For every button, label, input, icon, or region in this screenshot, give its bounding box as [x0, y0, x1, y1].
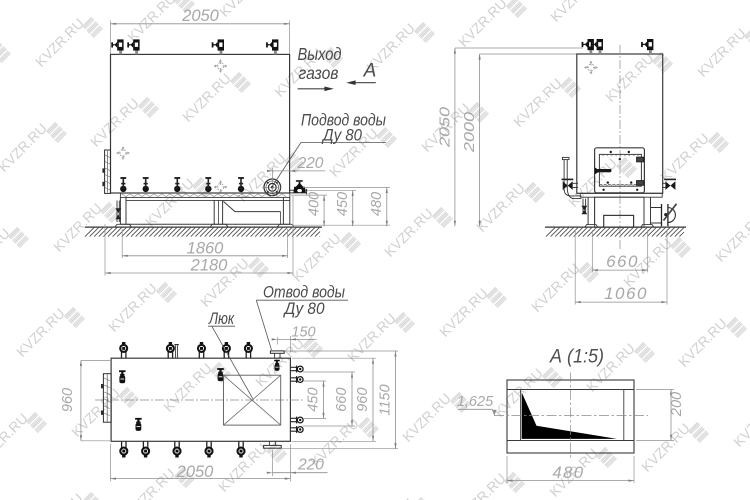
svg-text:2050: 2050	[176, 463, 215, 481]
svg-text:KVZR.RU: KVZR.RU	[362, 495, 417, 500]
svg-text:2050: 2050	[181, 7, 220, 25]
svg-text:KVZR.RU: KVZR.RU	[124, 0, 179, 45]
svg-text:480: 480	[369, 192, 385, 216]
svg-text:KVZR.RU: KVZR.RU	[0, 120, 50, 175]
svg-text:KVZR.RU: KVZR.RU	[216, 0, 271, 20]
svg-text:KVZR.RU: KVZR.RU	[436, 285, 491, 340]
svg-text:200: 200	[669, 392, 685, 417]
svg-text:KVZR.RU: KVZR.RU	[528, 260, 583, 315]
svg-text:450: 450	[335, 192, 351, 216]
svg-text:1,625: 1,625	[457, 394, 494, 410]
svg-text:220: 220	[297, 457, 324, 474]
svg-text:2050: 2050	[437, 106, 454, 148]
svg-text:KVZR.RU: KVZR.RU	[510, 75, 565, 130]
svg-text:960: 960	[355, 388, 371, 412]
svg-text:KVZR.RU: KVZR.RU	[0, 410, 31, 465]
svg-text:150: 150	[291, 324, 315, 340]
svg-text:KVZR.RU: KVZR.RU	[105, 280, 160, 335]
svg-text:2000: 2000	[461, 111, 478, 153]
svg-text:KVZR.RU: KVZR.RU	[602, 50, 657, 105]
svg-text:400: 400	[307, 192, 323, 216]
svg-text:KVZR.RU: KVZR.RU	[473, 180, 528, 235]
svg-text:А (1:5): А (1:5)	[549, 347, 604, 368]
svg-text:KVZR.RU: KVZR.RU	[657, 130, 712, 185]
svg-text:KVZR.RU: KVZR.RU	[32, 15, 87, 70]
svg-text:KVZR.RU: KVZR.RU	[638, 420, 693, 475]
svg-text:Ду 80: Ду 80	[283, 300, 326, 318]
svg-text:KVZR.RU: KVZR.RU	[730, 395, 750, 450]
svg-text:1150: 1150	[378, 384, 394, 415]
svg-text:1060: 1060	[604, 284, 648, 303]
svg-text:660: 660	[334, 388, 350, 412]
svg-text:KVZR.RU: KVZR.RU	[87, 95, 142, 150]
svg-text:KVZR.RU: KVZR.RU	[68, 385, 123, 440]
svg-text:660: 660	[606, 252, 639, 271]
svg-text:KVZR.RU: KVZR.RU	[123, 465, 178, 500]
svg-text:KVZR.RU: KVZR.RU	[675, 315, 730, 370]
svg-text:KVZR.RU: KVZR.RU	[179, 70, 234, 125]
svg-text:Ду 80: Ду 80	[321, 127, 363, 145]
svg-text:KVZR.RU: KVZR.RU	[289, 230, 344, 285]
svg-text:KVZR.RU: KVZR.RU	[344, 310, 399, 365]
svg-text:960: 960	[60, 388, 76, 412]
svg-text:KVZR.RU: KVZR.RU	[13, 305, 68, 360]
svg-text:450: 450	[306, 388, 322, 412]
svg-text:газов: газов	[299, 63, 339, 83]
svg-text:480: 480	[552, 464, 584, 482]
svg-text:KVZR.RU: KVZR.RU	[454, 470, 509, 500]
svg-text:KVZR.RU: KVZR.RU	[142, 175, 197, 230]
svg-text:1860: 1860	[187, 239, 225, 257]
svg-text:KVZR.RU: KVZR.RU	[547, 0, 602, 25]
svg-text:KVZR.RU: KVZR.RU	[565, 155, 620, 210]
svg-text:KVZR.RU: KVZR.RU	[491, 365, 546, 420]
svg-text:Выход: Выход	[298, 44, 342, 64]
svg-text:Отвод воды: Отвод воды	[263, 284, 345, 302]
svg-text:KVZR.RU: KVZR.RU	[712, 210, 750, 265]
svg-text:2180: 2180	[190, 257, 229, 275]
svg-text:А: А	[363, 61, 377, 82]
svg-text:KVZR.RU: KVZR.RU	[455, 0, 510, 50]
svg-text:KVZR.RU: KVZR.RU	[694, 25, 749, 80]
svg-text:KVZR.RU: KVZR.RU	[31, 490, 86, 500]
svg-text:KVZR.RU: KVZR.RU	[381, 205, 436, 260]
svg-text:KVZR.RU: KVZR.RU	[160, 360, 215, 415]
svg-text:Люк: Люк	[208, 310, 235, 328]
svg-text:KVZR.RU: KVZR.RU	[399, 390, 454, 445]
svg-text:220: 220	[297, 155, 324, 172]
